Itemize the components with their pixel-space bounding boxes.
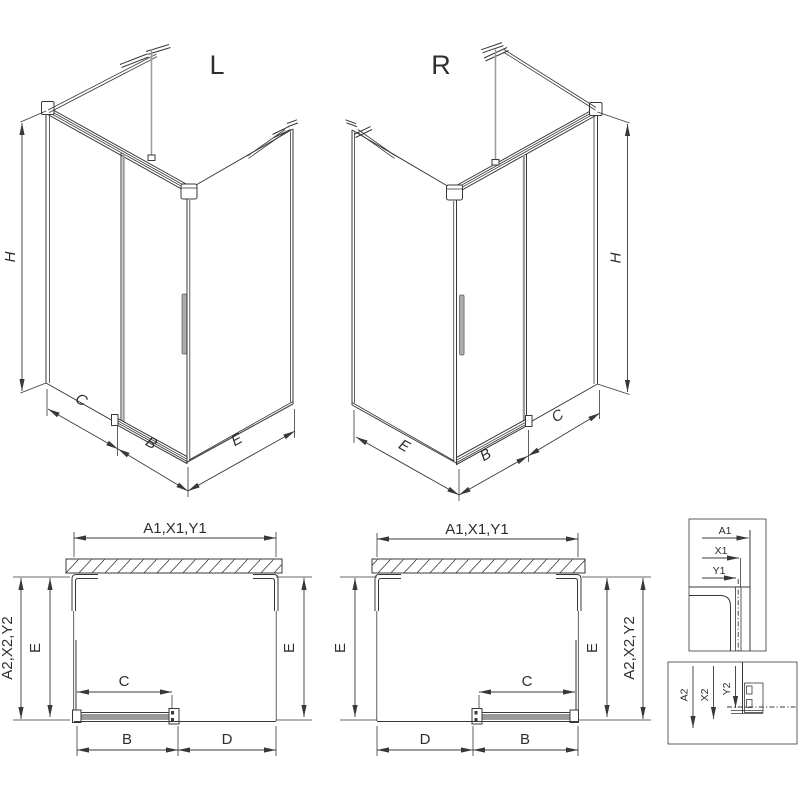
dim-c: C [77,673,172,709]
dim-label-a1x1y1: A1,X1,Y1 [445,521,508,538]
dim-height: H [598,112,630,395]
track-lines [731,711,763,714]
dim-a1: A1,X1,Y1 [74,520,276,557]
dim-label-e-right: E [584,643,601,653]
dim-label-y1: Y1 [713,565,726,577]
dim-depth-right: E A2,X2,Y2 [578,577,651,720]
dim-label-a1x1y1: A1,X1,Y1 [143,520,206,537]
wall-section [66,559,282,573]
shower-enclosure-drawing: L [0,0,800,800]
wall-profile-left [72,575,98,612]
dim-label-e-left: E [27,643,44,653]
dim-label-h: H [2,251,19,262]
plan-view-left: A1,X1,Y1 A2,X2,Y2 E E C [0,520,312,756]
door-handle [182,294,187,354]
top-rail [42,102,188,193]
dim-label-c: C [549,406,567,426]
top-rail [457,103,603,194]
dim-a1: A1,X1,Y1 [377,521,578,557]
support-bar [503,50,596,111]
door-handle [460,295,465,355]
dim-label-e-left: E [332,643,349,653]
dim-label-c: C [72,390,90,410]
dim-y1: Y1 [702,565,736,578]
dim-x2: X2 [699,666,714,719]
detail-box-bottom: A2 X2 Y2 [668,662,797,744]
front-glass-panel [46,111,187,463]
variant-label-left: L [209,50,224,80]
rail-profile [745,683,764,713]
dim-b-d: B D [77,726,276,756]
dim-label-c: C [119,673,130,690]
track-bracket [526,416,533,427]
detail-box-top: A1 X1 Y1 [689,519,766,651]
variant-label-right: R [431,50,451,80]
dim-label-e: E [228,430,246,450]
door-bracket-right [570,710,579,723]
dim-label-a2x2y2: A2,X2,Y2 [621,616,638,679]
dim-label-y2: Y2 [721,682,733,695]
wall-profile-right [556,575,581,612]
side-glass-panel [187,129,294,463]
dim-y2: Y2 [721,666,736,708]
support-bar [48,54,157,113]
dim-label-b: B [122,731,132,748]
side-glass-panel [352,130,457,464]
dim-bottom: C B E [47,389,295,497]
sliding-door [112,153,188,464]
iso-view-left: L [2,45,298,498]
dim-label-a1: A1 [719,525,732,537]
side-glass-right [576,611,578,711]
dim-label-a2: A2 [679,688,691,701]
dim-label-a2x2y2: A2,X2,Y2 [0,616,16,679]
dim-label-c: C [522,673,533,690]
dim-label-x1: X1 [715,545,728,557]
sliding-door [457,154,533,465]
profile-inner [689,596,731,652]
wall-section [372,559,585,573]
dim-depth-right: E [276,577,312,720]
front-glass-panel [457,112,598,464]
wall-profile-right [253,575,278,612]
dim-a2: A2 [679,666,694,728]
door-bracket-left [73,710,82,723]
dim-label-x2: X2 [699,688,711,701]
dim-bottom: E B C [354,390,600,501]
dim-x1: X1 [702,545,739,558]
iso-view-right: R [346,43,630,501]
dim-label-e-right: E [281,643,298,653]
dim-label-d: D [420,731,431,748]
dim-label-h: H [608,252,625,263]
dim-label-b: B [520,731,530,748]
dim-depth-left: E [332,577,377,720]
dim-depth-left: A2,X2,Y2 E [0,577,70,720]
plan-view-right: A1,X1,Y1 E E A2,X2,Y2 C [332,521,651,756]
dim-d-b: D B [377,726,578,756]
dim-a1: A1 [702,525,749,538]
rod-connector [492,160,499,166]
dim-label-d: D [222,731,233,748]
wall-bracket-side [346,120,396,159]
dim-label-b: B [477,445,494,465]
dim-height: H [2,111,46,393]
technical-drawing-sheet: L [0,0,800,800]
dim-label-e: E [396,436,414,456]
dim-c: C [479,673,575,709]
side-glass-left [74,611,76,711]
track-bracket [112,415,119,426]
rod-connector [148,155,155,161]
wall-profile-left [375,575,401,612]
